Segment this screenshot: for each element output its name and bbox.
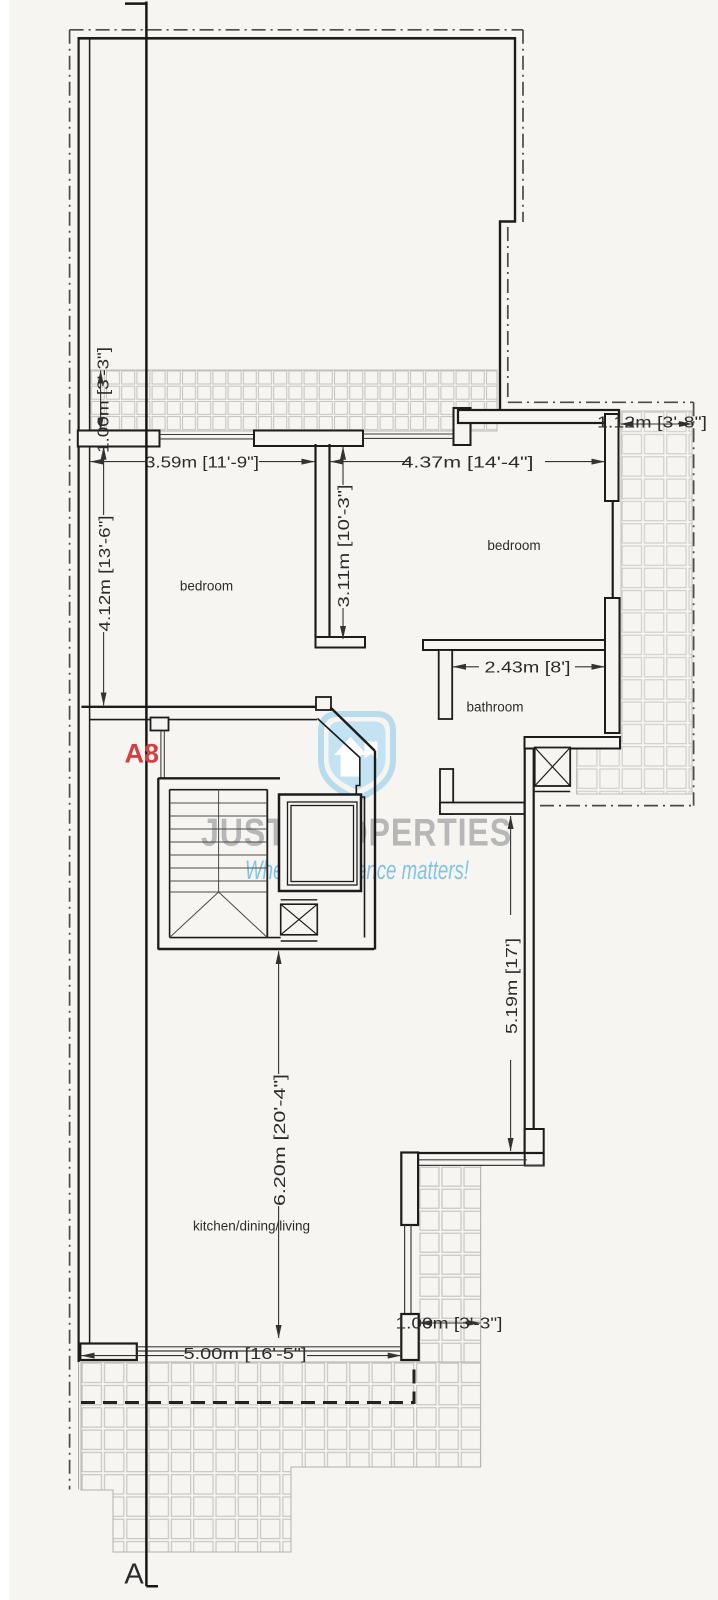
svg-text:5.00m [16'-5"]: 5.00m [16'-5"]: [184, 1346, 307, 1363]
svg-text:2.43m [8']: 2.43m [8']: [485, 660, 571, 677]
svg-text:A8: A8: [125, 739, 160, 769]
svg-text:bathroom: bathroom: [466, 700, 523, 715]
svg-text:bedroom: bedroom: [180, 579, 233, 594]
svg-text:kitchen/dining/living: kitchen/dining/living: [193, 1219, 310, 1234]
svg-text:bedroom: bedroom: [487, 538, 540, 553]
svg-text:3.59m [11'-9"]: 3.59m [11'-9"]: [145, 454, 259, 471]
svg-text:1.00m [3'-3"]: 1.00m [3'-3"]: [95, 347, 112, 453]
svg-text:4.12m [13'-6"]: 4.12m [13'-6"]: [97, 516, 114, 632]
svg-text:1.00m [3'-3"]: 1.00m [3'-3"]: [396, 1316, 503, 1333]
svg-text:A: A: [124, 1559, 144, 1591]
svg-text:3.11m [10'-3"]: 3.11m [10'-3"]: [336, 485, 353, 608]
svg-text:1.12m [3'-8"]: 1.12m [3'-8"]: [597, 415, 707, 432]
svg-text:5.19m [17']: 5.19m [17']: [504, 938, 521, 1034]
svg-text:6.20m [20'-4"]: 6.20m [20'-4"]: [272, 1074, 289, 1206]
svg-text:4.37m [14'-4"]: 4.37m [14'-4"]: [402, 454, 534, 471]
